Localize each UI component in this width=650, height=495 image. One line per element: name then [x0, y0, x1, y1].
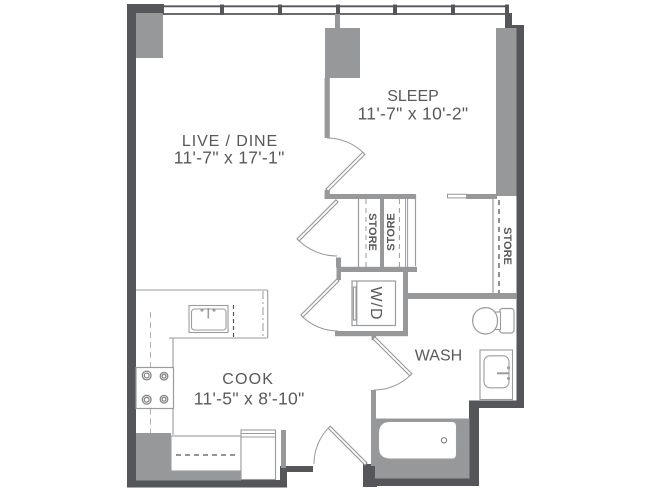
svg-text:11'-5" x 8'-10": 11'-5" x 8'-10" [194, 388, 305, 408]
svg-text:11'-7" x 17'-1": 11'-7" x 17'-1" [174, 147, 285, 167]
svg-text:W/D: W/D [367, 286, 384, 320]
svg-text:11'-7" x 10'-2": 11'-7" x 10'-2" [358, 103, 469, 123]
svg-text:STORE: STORE [501, 227, 513, 265]
svg-text:STORE: STORE [366, 213, 378, 251]
svg-text:WASH: WASH [415, 348, 462, 365]
svg-text:COOK: COOK [222, 371, 274, 388]
svg-text:STORE: STORE [386, 213, 398, 251]
